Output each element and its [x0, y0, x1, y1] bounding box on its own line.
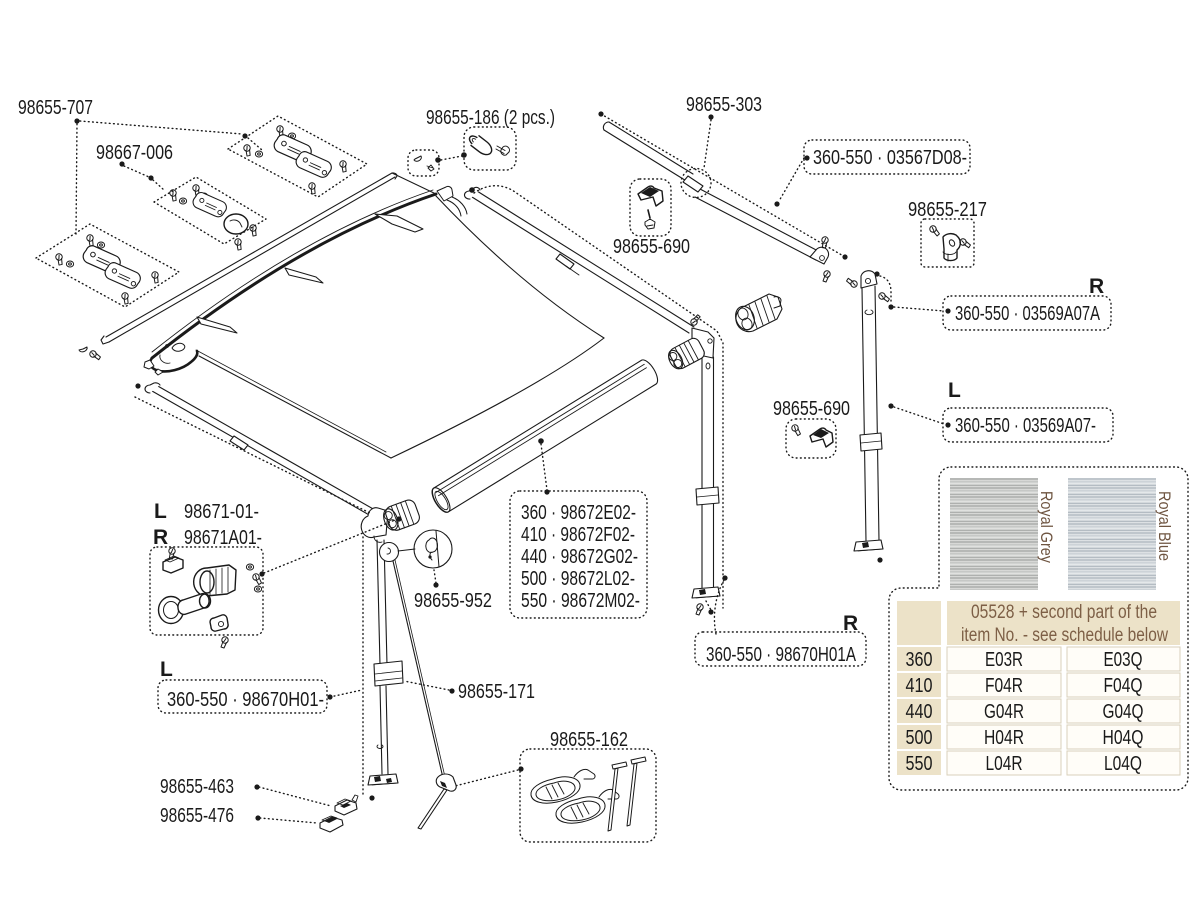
svg-text:98655-707: 98655-707 — [18, 97, 93, 119]
svg-text:item No. - see schedule below: item No. - see schedule below — [961, 625, 1168, 646]
svg-text:98655-476: 98655-476 — [160, 805, 234, 827]
svg-text:440 · 98672G02-: 440 · 98672G02- — [521, 546, 638, 568]
svg-text:500: 500 — [906, 727, 933, 749]
svg-text:H04R: H04R — [984, 727, 1024, 749]
svg-text:360 · 98672E02-: 360 · 98672E02- — [521, 502, 636, 524]
svg-text:98655-952: 98655-952 — [414, 590, 492, 612]
svg-text:R: R — [843, 612, 858, 635]
svg-text:H04Q: H04Q — [1103, 727, 1144, 749]
svg-text:F04Q: F04Q — [1104, 675, 1143, 697]
svg-text:F04R: F04R — [985, 675, 1023, 697]
svg-text:360-550 · 03569A07-: 360-550 · 03569A07- — [955, 415, 1096, 437]
svg-text:98671-01-: 98671-01- — [184, 501, 259, 523]
svg-text:98655-217: 98655-217 — [908, 199, 987, 221]
svg-text:410: 410 — [906, 675, 933, 697]
svg-text:360: 360 — [906, 649, 933, 671]
svg-text:98671A01-: 98671A01- — [184, 527, 262, 549]
svg-text:E03Q: E03Q — [1104, 649, 1143, 671]
svg-text:440: 440 — [906, 701, 933, 723]
svg-text:G04R: G04R — [984, 701, 1024, 723]
svg-text:98655-162: 98655-162 — [550, 729, 628, 751]
svg-text:R: R — [153, 526, 168, 549]
svg-text:410 · 98672F02-: 410 · 98672F02- — [521, 524, 635, 546]
svg-text:L: L — [948, 379, 961, 402]
svg-text:G04Q: G04Q — [1103, 701, 1144, 723]
svg-text:360-550 · 03567D08-: 360-550 · 03567D08- — [813, 147, 967, 169]
svg-text:98667-006: 98667-006 — [96, 142, 173, 164]
svg-text:R: R — [1089, 275, 1104, 298]
svg-text:98655-171: 98655-171 — [458, 681, 535, 703]
svg-text:L: L — [160, 658, 173, 681]
svg-text:98655-690: 98655-690 — [613, 236, 690, 258]
svg-text:L04Q: L04Q — [1104, 753, 1142, 775]
svg-text:Royal Grey: Royal Grey — [1037, 491, 1056, 563]
svg-text:Royal Blue: Royal Blue — [1155, 491, 1174, 561]
svg-text:98655-463: 98655-463 — [160, 776, 234, 798]
svg-text:05528 + second part of the: 05528 + second part of the — [971, 602, 1157, 623]
svg-text:550 · 98672M02-: 550 · 98672M02- — [521, 590, 640, 612]
svg-text:E03R: E03R — [985, 649, 1023, 671]
svg-text:500 · 98672L02-: 500 · 98672L02- — [521, 568, 635, 590]
svg-text:360-550 · 03569A07A: 360-550 · 03569A07A — [955, 303, 1100, 325]
svg-text:360-550 · 98670H01-: 360-550 · 98670H01- — [167, 689, 324, 711]
svg-text:L: L — [154, 500, 167, 523]
svg-text:98655-186 (2 pcs.): 98655-186 (2 pcs.) — [426, 107, 555, 129]
svg-text:550: 550 — [906, 753, 933, 775]
svg-text:98655-303: 98655-303 — [686, 94, 762, 116]
svg-text:L04R: L04R — [986, 753, 1023, 775]
svg-text:98655-690: 98655-690 — [773, 398, 850, 420]
svg-text:360-550 · 98670H01A: 360-550 · 98670H01A — [706, 644, 856, 666]
